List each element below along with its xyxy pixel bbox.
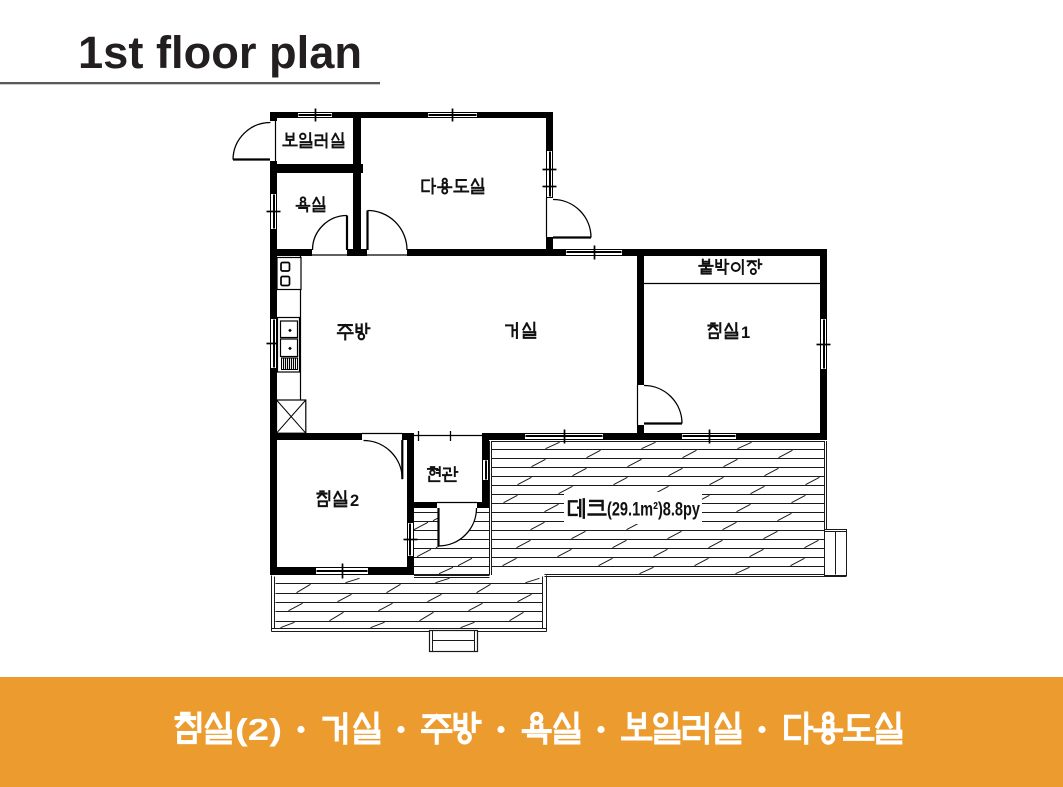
svg-text:1: 1 [741, 324, 750, 342]
svg-text:1st floor plan: 1st floor plan [78, 27, 362, 78]
svg-text:2: 2 [350, 492, 359, 510]
svg-text:(29.1m²)8.8py: (29.1m²)8.8py [607, 500, 700, 521]
svg-text:(2): (2) [235, 712, 282, 747]
